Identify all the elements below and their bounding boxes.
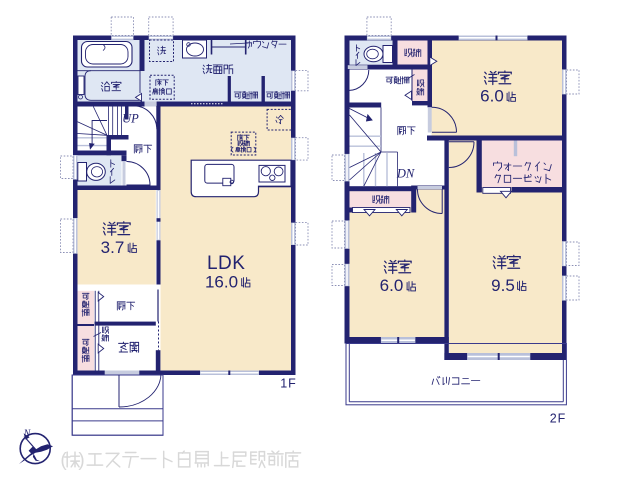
svg-text:9.5: 9.5 [491,276,515,295]
svg-text:LDK: LDK [207,253,245,274]
svg-text:2F: 2F [550,412,567,426]
svg-text:(: ( [60,450,67,471]
svg-text:UP: UP [122,112,139,126]
svg-text:6.0: 6.0 [380,276,404,295]
svg-text:1F: 1F [280,377,297,391]
svg-text:16.0: 16.0 [205,273,238,292]
svg-text:3.7: 3.7 [101,238,125,257]
svg-text:6.0: 6.0 [480,87,504,106]
svg-text:DN: DN [396,167,415,181]
svg-text:): ) [78,450,84,471]
svg-text:N: N [23,429,32,440]
